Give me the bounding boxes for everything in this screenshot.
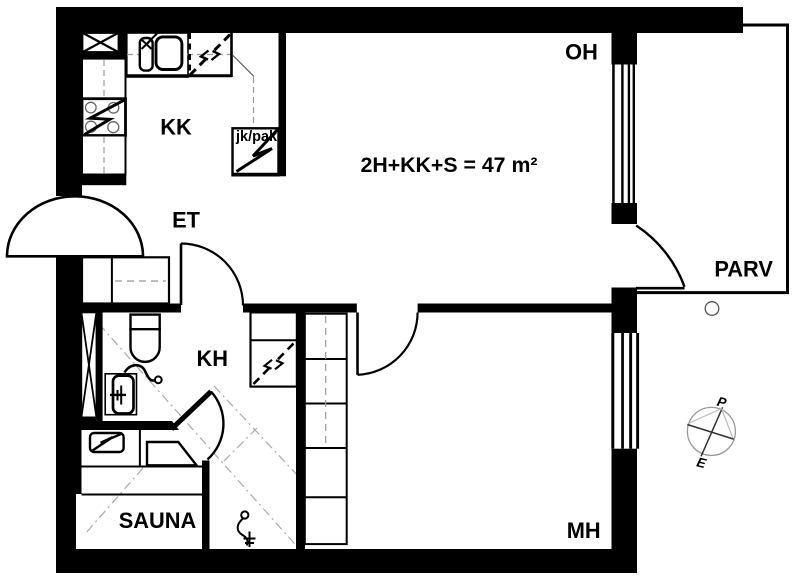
svg-text:KK: KK	[160, 115, 192, 140]
svg-text:OH: OH	[565, 39, 598, 64]
svg-text:ET: ET	[172, 208, 201, 233]
svg-text:KH: KH	[196, 346, 227, 371]
svg-text:PARV: PARV	[714, 256, 773, 281]
svg-text:jk/pak: jk/pak	[235, 129, 278, 145]
svg-text:2H+KK+S = 47 m²: 2H+KK+S = 47 m²	[361, 153, 538, 177]
svg-text:SAUNA: SAUNA	[119, 508, 197, 533]
svg-text:MH: MH	[567, 518, 601, 543]
